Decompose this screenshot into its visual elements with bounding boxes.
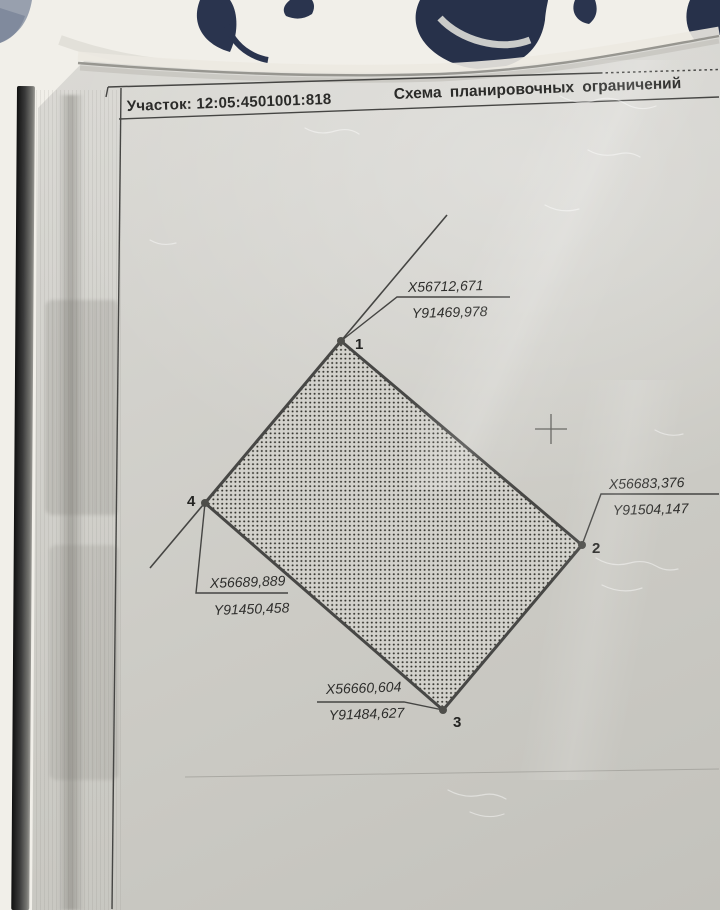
- scan-smudge: [46, 300, 118, 515]
- scan-smudge: [50, 545, 118, 780]
- photo-of-cadastral-document: Участок: 12:05:4501001:818 Схема планиро…: [0, 0, 720, 910]
- binder-spine: [11, 86, 35, 910]
- sleeve-sheen: [450, 380, 720, 780]
